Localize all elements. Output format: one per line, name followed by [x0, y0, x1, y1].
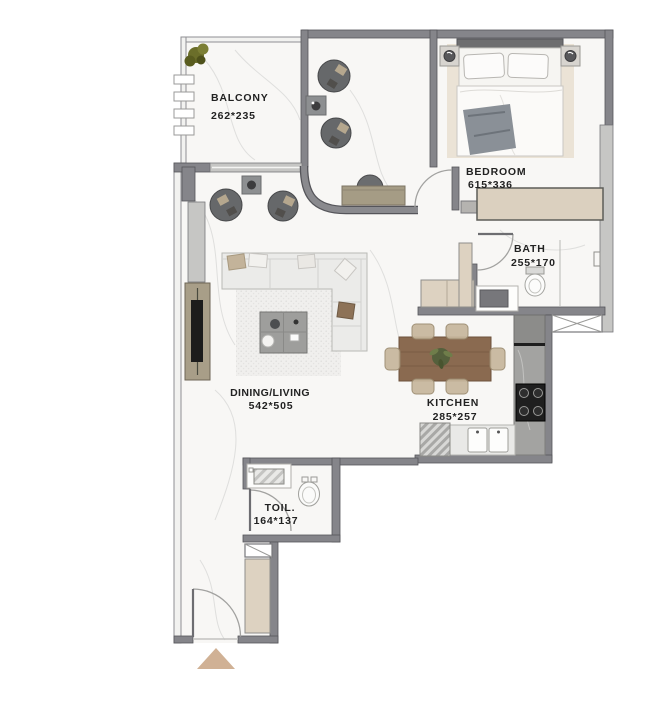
tv-unit	[185, 283, 210, 380]
bottom-wall-right	[238, 636, 278, 643]
sofa-pillow-2	[248, 253, 267, 268]
dining-living-dims: 542*505	[249, 400, 294, 412]
dining-chair-top-1	[412, 324, 434, 339]
table-decor-dot	[312, 102, 315, 105]
balcony-top-wall	[181, 37, 302, 42]
tv-screen	[191, 300, 203, 362]
floor-plan-drawing: BALCONY 262*235 BEDROOM 615*336 BATH 255…	[0, 0, 660, 705]
toilet-label: TOIL.	[265, 502, 296, 514]
service-shaft-large	[552, 315, 602, 332]
toilet-right-wall	[332, 458, 340, 542]
sofa-pillow-5	[337, 302, 355, 319]
burner-2	[534, 389, 543, 398]
wardrobe-step	[461, 201, 477, 213]
kitchen-label: KITCHEN	[427, 397, 479, 409]
cabinet-shadow	[514, 343, 545, 346]
burner-4	[534, 407, 543, 416]
bed-headboard	[457, 39, 563, 48]
table-bowl	[262, 335, 274, 347]
bedroom-left-wall	[430, 30, 437, 167]
fridge	[420, 423, 450, 456]
kitchen-dims: 285*257	[433, 411, 478, 423]
toilet-dims: 164*137	[254, 515, 299, 527]
burner-1	[520, 389, 529, 398]
table-plant-icon	[270, 319, 280, 329]
toilet-bottom-wall	[243, 535, 340, 542]
basin2-drain	[497, 431, 500, 434]
bath-sink	[480, 290, 508, 307]
left-wall	[174, 163, 181, 643]
kitchen-right-wall	[545, 315, 552, 462]
dining-living-label: DINING/LIVING	[230, 387, 310, 399]
bedroom-dims: 615*336	[468, 179, 513, 191]
kitchen-tall-cabinet	[514, 315, 545, 345]
hall-cabinet-tall	[459, 243, 472, 307]
desk	[342, 186, 405, 205]
entry-arrow-icon	[197, 648, 235, 669]
bedroom-label: BEDROOM	[466, 166, 526, 178]
bed-pillow-left	[463, 53, 504, 79]
living-table-decor	[247, 181, 256, 190]
bath-dims: 255*170	[511, 257, 556, 269]
bed-pillow-right	[508, 53, 549, 78]
dining-chair-bottom-1	[412, 379, 434, 394]
balcony-dims: 262*235	[211, 110, 256, 122]
bath-label: BATH	[514, 243, 546, 255]
entry-closet	[245, 559, 270, 633]
burner-3	[520, 407, 529, 416]
dining-chair-right	[490, 348, 505, 370]
service-shaft-small	[245, 544, 272, 557]
bedroom-door-stub	[452, 167, 459, 210]
top-wall	[302, 30, 613, 38]
sofa-pillow-3	[298, 254, 316, 268]
lounge-chair-3	[210, 189, 242, 221]
basin1-drain	[476, 431, 479, 434]
table-cup	[294, 320, 299, 325]
balcony-label: BALCONY	[211, 92, 269, 104]
right-wall-upper	[605, 30, 613, 125]
dining-chair-top-2	[446, 324, 468, 339]
dining-chair-bottom-2	[446, 379, 468, 394]
right-wall-window	[600, 125, 613, 332]
wardrobe	[477, 188, 603, 220]
bottom-wall-left	[174, 636, 193, 643]
left-pillar	[182, 167, 195, 201]
left-wall-panel	[188, 202, 205, 282]
table-book	[290, 334, 299, 341]
toilet-vanity-sink	[254, 469, 284, 484]
floor-plan: BALCONY 262*235 BEDROOM 615*336 BATH 255…	[0, 0, 660, 705]
wc-bowl	[299, 482, 320, 506]
sofa-pillow-1	[227, 254, 246, 270]
dining-chair-left	[385, 348, 400, 370]
